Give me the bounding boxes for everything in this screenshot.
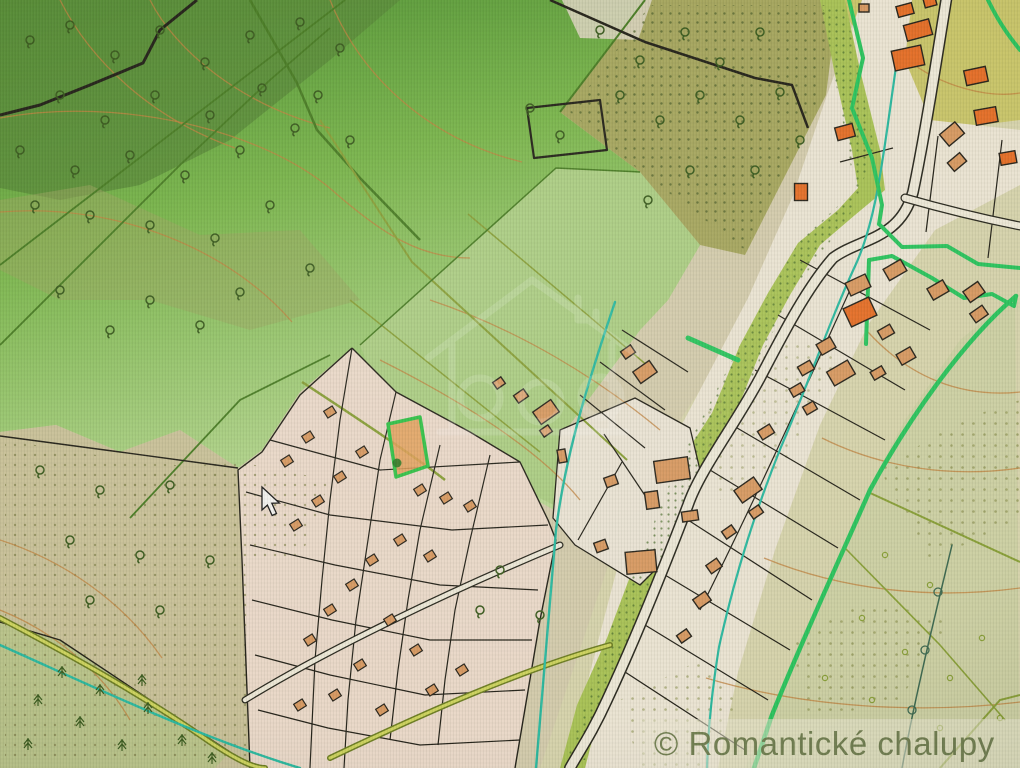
building bbox=[557, 449, 567, 463]
map-canvas[interactable] bbox=[0, 0, 1020, 768]
building bbox=[974, 107, 998, 126]
building bbox=[999, 151, 1017, 166]
building bbox=[859, 4, 869, 12]
watermark-text: © Romantické chalupy bbox=[654, 725, 995, 763]
map-viewport[interactable]: © Romantické chalupy bbox=[0, 0, 1020, 768]
selected-parcel[interactable] bbox=[388, 417, 428, 477]
copyright-watermark: © Romantické chalupy bbox=[640, 719, 1020, 768]
building bbox=[644, 491, 659, 510]
building bbox=[795, 184, 808, 201]
selected-parcel-tree-icon bbox=[393, 459, 402, 468]
building bbox=[681, 510, 698, 522]
building bbox=[625, 550, 657, 575]
building bbox=[654, 457, 691, 484]
